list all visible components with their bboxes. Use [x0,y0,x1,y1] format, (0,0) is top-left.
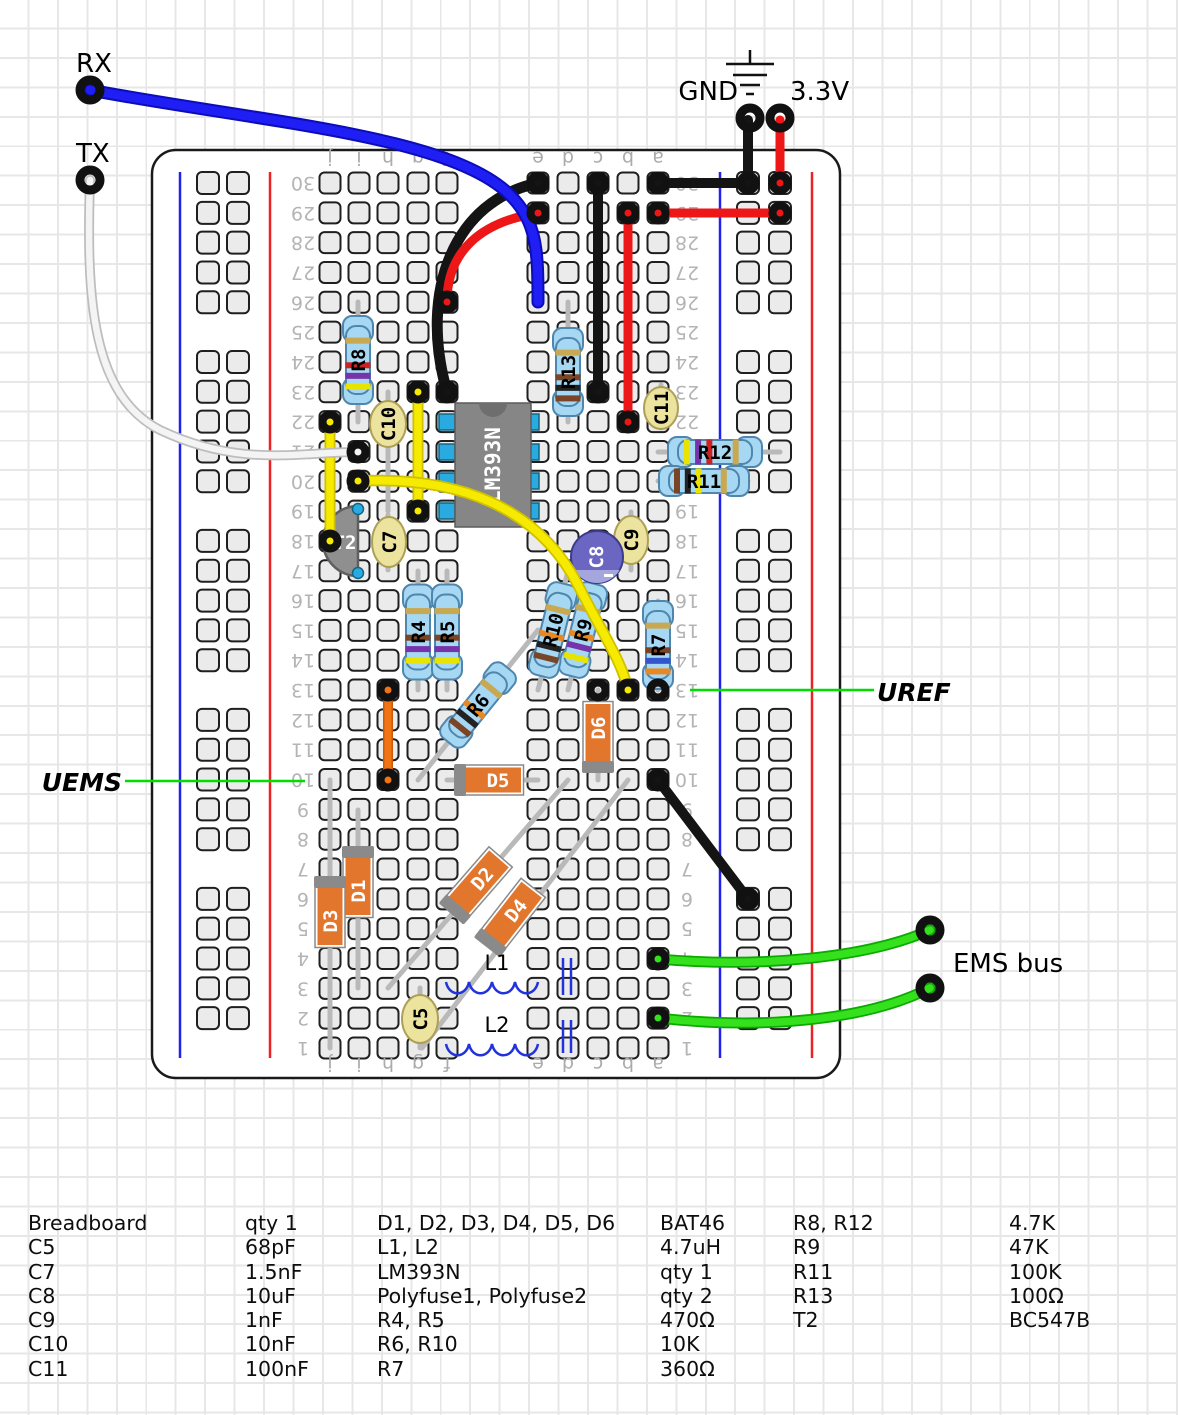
part-name: C5 [28,1235,147,1259]
ic-pin [439,503,455,519]
hole [618,590,639,611]
rail-hole [769,828,791,850]
hole [378,799,399,820]
hole [588,501,609,522]
hole [588,859,609,880]
part-name: L1, L2 [377,1235,615,1259]
hole [618,859,639,880]
hole [349,1008,370,1029]
part-value: 100nF [245,1357,309,1381]
hole [528,859,549,880]
hole [618,709,639,730]
hole [648,829,669,850]
row-number: 17 [291,560,315,582]
uref-label: UREF [877,678,951,707]
hole [320,620,341,641]
row-number: 7 [681,858,693,880]
column-letter: h [382,147,394,169]
row-number: 26 [291,291,315,313]
rail-hole [227,1007,249,1029]
row-number: 6 [297,888,309,910]
resistor-band [721,469,727,494]
rail-hole [197,560,219,582]
label-D1: D1 [348,880,370,903]
diode-D5: D5 [454,764,524,796]
part-value: 68pF [245,1235,309,1259]
row-number: 17 [675,560,699,582]
rail-hole [197,470,219,492]
column-letter: a [652,147,664,169]
part-name: C7 [28,1260,147,1284]
hole [648,501,669,522]
resistor-R5: R5 [432,585,462,680]
hole [378,859,399,880]
label-D5: D5 [487,770,510,792]
hole [528,351,549,372]
hole [528,948,549,969]
hole [558,1008,579,1029]
resistor-band [646,668,671,674]
rail-hole [737,977,759,999]
rail-hole [197,619,219,641]
rail-hole [769,888,791,910]
label-C9: C9 [621,529,643,552]
hole [437,948,458,969]
pin [353,504,364,515]
part-value: 1.5nF [245,1260,309,1284]
column-letter: i [356,147,361,169]
hole [648,918,669,939]
part-name: LM393N [377,1260,615,1284]
row-number: 1 [297,1037,309,1059]
hole [408,173,429,194]
part-value: BC547B [1009,1308,1090,1332]
resistor-band [435,608,460,614]
hole [320,292,341,313]
hole [349,173,370,194]
column-letter: c [593,147,603,169]
rail-hole [227,351,249,373]
label-D6: D6 [588,717,610,740]
rail-hole [737,291,759,313]
resistor-R13: R13 [553,328,583,416]
column-letter: e [532,1053,544,1075]
rail-hole [737,381,759,403]
part-value: qty 1 [660,1260,725,1284]
rail-hole [197,291,219,313]
hole [378,322,399,343]
column-letter: j [327,1053,333,1075]
parts-list-values-3: 4.7K47K100K100ΩBC547B [1009,1211,1090,1332]
column-letter: b [622,147,634,169]
row-number: 10 [291,769,315,791]
hole [378,292,399,313]
part-value: 47K [1009,1235,1090,1259]
rail-hole [737,769,759,791]
resistor-band [646,658,671,664]
ic-pin [439,414,455,430]
row-number: 1 [681,1037,693,1059]
hole [618,888,639,909]
rail-hole [197,261,219,283]
resistor-band [674,469,680,494]
ic-pin [439,444,455,460]
resistor-band [406,646,431,652]
hole [378,351,399,372]
hole [648,292,669,313]
hole [320,650,341,671]
hole [408,739,429,760]
hole [558,262,579,283]
rail-hole [737,560,759,582]
hole [349,739,370,760]
row-number: 3 [681,977,693,999]
row-number: 19 [291,500,315,522]
part-name: Breadboard [28,1211,147,1235]
hole [558,709,579,730]
part-value: 1nF [245,1308,309,1332]
hole [648,322,669,343]
row-number: 27 [291,261,315,283]
hole [648,351,669,372]
row-number: 23 [291,381,315,403]
row-number: 12 [675,709,699,731]
tx-label: TX [75,139,110,169]
rail-hole [769,530,791,552]
rail-hole [227,232,249,254]
part-value: 10K [660,1332,725,1356]
parts-list-names-2: D1, D2, D3, D4, D5, D6L1, L2LM393NPolyfu… [377,1211,615,1381]
rail-hole [197,381,219,403]
rail-hole [737,351,759,373]
rail-hole [769,590,791,612]
label-R12: R12 [698,442,732,464]
resistor-band [435,646,460,652]
diode-D6: D6 [582,702,614,774]
part-name: R9 [793,1235,874,1259]
hole [408,262,429,283]
rail-hole [227,202,249,224]
rail-hole [769,291,791,313]
hole [378,1008,399,1029]
row-number: 8 [297,828,309,850]
hole [618,918,639,939]
hole [408,292,429,313]
rail-hole [227,948,249,970]
hole [648,560,669,581]
rail-hole [197,769,219,791]
hole [558,918,579,939]
rail-hole [769,977,791,999]
row-number: 19 [675,500,699,522]
label-R7: R7 [648,634,670,657]
row-number: 7 [297,858,309,880]
row-number: 3 [297,977,309,999]
label-C8: C8 [586,546,608,569]
hole [320,262,341,283]
hole [408,322,429,343]
rail-hole [227,888,249,910]
hole [378,620,399,641]
row-number: 5 [681,918,693,940]
rail-hole [197,1007,219,1029]
rail-hole [769,649,791,671]
rail-hole [197,351,219,373]
row-number: 24 [675,351,699,373]
capacitor-C7: C7 [372,517,406,567]
row-number: 22 [675,411,699,433]
hole [618,948,639,969]
cathode-band [342,846,374,858]
hole [349,680,370,701]
row-number: 9 [297,798,309,820]
part-name: D1, D2, D3, D4, D5, D6 [377,1211,615,1235]
row-number: 5 [297,918,309,940]
row-number: 4 [297,948,309,970]
rail-hole [769,560,791,582]
part-value: 360Ω [660,1357,725,1381]
rail-hole [737,232,759,254]
hole [528,829,549,850]
row-number: 29 [291,202,315,224]
hole [558,232,579,253]
hole [320,173,341,194]
row-number: 26 [675,291,699,313]
parts-list-values-1: qty 168pF1.5nF10uF1nF10nF100nF [245,1211,309,1381]
rail-hole [227,709,249,731]
resistor-band [556,395,581,401]
cathode-band [454,764,466,796]
hole [648,739,669,760]
rail-hole [197,918,219,940]
rail-hole [227,619,249,641]
label-LM393N: LM393N [481,427,505,503]
hole [558,948,579,969]
rail-hole [769,798,791,820]
hole [558,799,579,820]
label-L1: L1 [484,951,509,975]
column-letter: g [412,1053,424,1075]
part-value: 10nF [245,1332,309,1356]
column-letter: b [622,1053,634,1075]
hole [648,530,669,551]
part-value: 100K [1009,1260,1090,1284]
row-number: 12 [291,709,315,731]
part-name: R4, R5 [377,1308,615,1332]
hole [378,948,399,969]
rail-hole [197,828,219,850]
resistor-band [406,608,431,614]
hole [349,590,370,611]
part-name: R11 [793,1260,874,1284]
hole [528,709,549,730]
hole [558,888,579,909]
rail-hole [197,411,219,433]
part-name: C9 [28,1308,147,1332]
hole [558,739,579,760]
resistor-R8: R8 [343,316,373,404]
rail-hole [769,411,791,433]
part-value: BAT46 [660,1211,725,1235]
capacitor-C5: C5 [402,995,438,1043]
rail-hole [737,739,759,761]
hole [349,709,370,730]
rail-hole [737,918,759,940]
hole [408,888,429,909]
resistor-band [646,623,671,629]
part-name: R6, R10 [377,1332,615,1356]
rail-hole [197,888,219,910]
rail-hole [197,948,219,970]
row-number: 25 [291,321,315,343]
hole [618,173,639,194]
resistor-R11: R11 [659,466,749,496]
hole [378,590,399,611]
resistor-band [346,383,371,389]
rail-hole [227,739,249,761]
column-letter: i [356,1053,361,1075]
hole [349,202,370,223]
resistor-band [556,350,581,356]
part-value: 4.7K [1009,1211,1090,1235]
hole [528,978,549,999]
part-name: C11 [28,1357,147,1381]
row-number: 14 [291,649,315,671]
part-name: T2 [793,1308,874,1332]
hole [588,978,609,999]
row-number: 13 [291,679,315,701]
hole [528,322,549,343]
row-number: 15 [675,619,699,641]
label-C7: C7 [379,531,401,554]
hole [437,202,458,223]
rail-hole [197,530,219,552]
hole [349,262,370,283]
part-value: qty 1 [245,1211,309,1235]
hole [558,441,579,462]
row-number: 22 [291,411,315,433]
hole [558,202,579,223]
row-number: 16 [675,590,699,612]
part-name: C8 [28,1284,147,1308]
hole [378,888,399,909]
row-number: 28 [675,232,699,254]
v33-label: 3.3V [790,77,849,107]
rail-hole [227,411,249,433]
label-R13: R13 [558,355,580,389]
hole [349,620,370,641]
hole [588,918,609,939]
ems-bus-label: EMS bus [953,949,1063,979]
hole [408,351,429,372]
hole [618,1008,639,1029]
hole [408,709,429,730]
rail-hole [227,828,249,850]
uems-label: UEMS [42,768,122,797]
hole [558,173,579,194]
rail-hole [769,381,791,403]
column-letter: c [593,1053,603,1075]
hole [320,322,341,343]
parts-list-values-2: BAT464.7uHqty 1qty 2470Ω10K360Ω [660,1211,725,1381]
hole [408,918,429,939]
gnd-label: GND [678,77,738,107]
hole [408,530,429,551]
hole [528,918,549,939]
hole [320,351,341,372]
hole [648,232,669,253]
hole [320,202,341,223]
rail-hole [227,590,249,612]
row-number: 28 [291,232,315,254]
row-number: 10 [675,769,699,791]
capacitor-C11: C11 [644,387,678,429]
rail-hole [769,918,791,940]
row-number: 11 [675,739,699,761]
hole [408,829,429,850]
breadboard-diagram: 1122334455667788991010111112121313141415… [0,0,1178,1415]
hole [408,799,429,820]
hole [618,471,639,492]
hole [648,262,669,283]
rail-hole [227,798,249,820]
rail-hole [737,619,759,641]
resistor-R4: R4 [403,585,433,680]
hole [320,739,341,760]
hole [618,739,639,760]
hole [378,173,399,194]
rail-hole [227,918,249,940]
part-value: 470Ω [660,1308,725,1332]
hole [408,202,429,223]
rail-hole [227,172,249,194]
column-letter: d [562,147,574,169]
hole [558,501,579,522]
rail-hole [197,739,219,761]
diode-D1: D1 [342,846,374,918]
row-number: 14 [675,649,699,671]
part-value: qty 2 [660,1284,725,1308]
resistor-R7: R7 [643,601,673,689]
hole [648,978,669,999]
hole [320,381,341,402]
row-number: 25 [675,321,699,343]
resistor-band [346,373,371,379]
resistor-band [684,440,690,465]
pin [353,568,364,579]
hole [378,918,399,939]
cathode-band [582,761,614,773]
row-number: 30 [291,172,315,194]
rail-hole [197,232,219,254]
part-value: 4.7uH [660,1235,725,1259]
rail-hole [227,261,249,283]
hole [349,769,370,790]
column-letter: a [652,1053,664,1075]
rail-hole [197,709,219,731]
column-letter: e [532,147,544,169]
resistor-R12: R12 [668,437,762,467]
rail-hole [769,261,791,283]
column-letter: j [327,147,333,169]
hole [349,650,370,671]
label-L2: L2 [484,1013,509,1037]
parts-list-names-1: BreadboardC5C7C8C9C10C11 [28,1211,147,1381]
row-number: 11 [291,739,315,761]
rail-hole [227,530,249,552]
hole [437,530,458,551]
part-name: R13 [793,1284,874,1308]
